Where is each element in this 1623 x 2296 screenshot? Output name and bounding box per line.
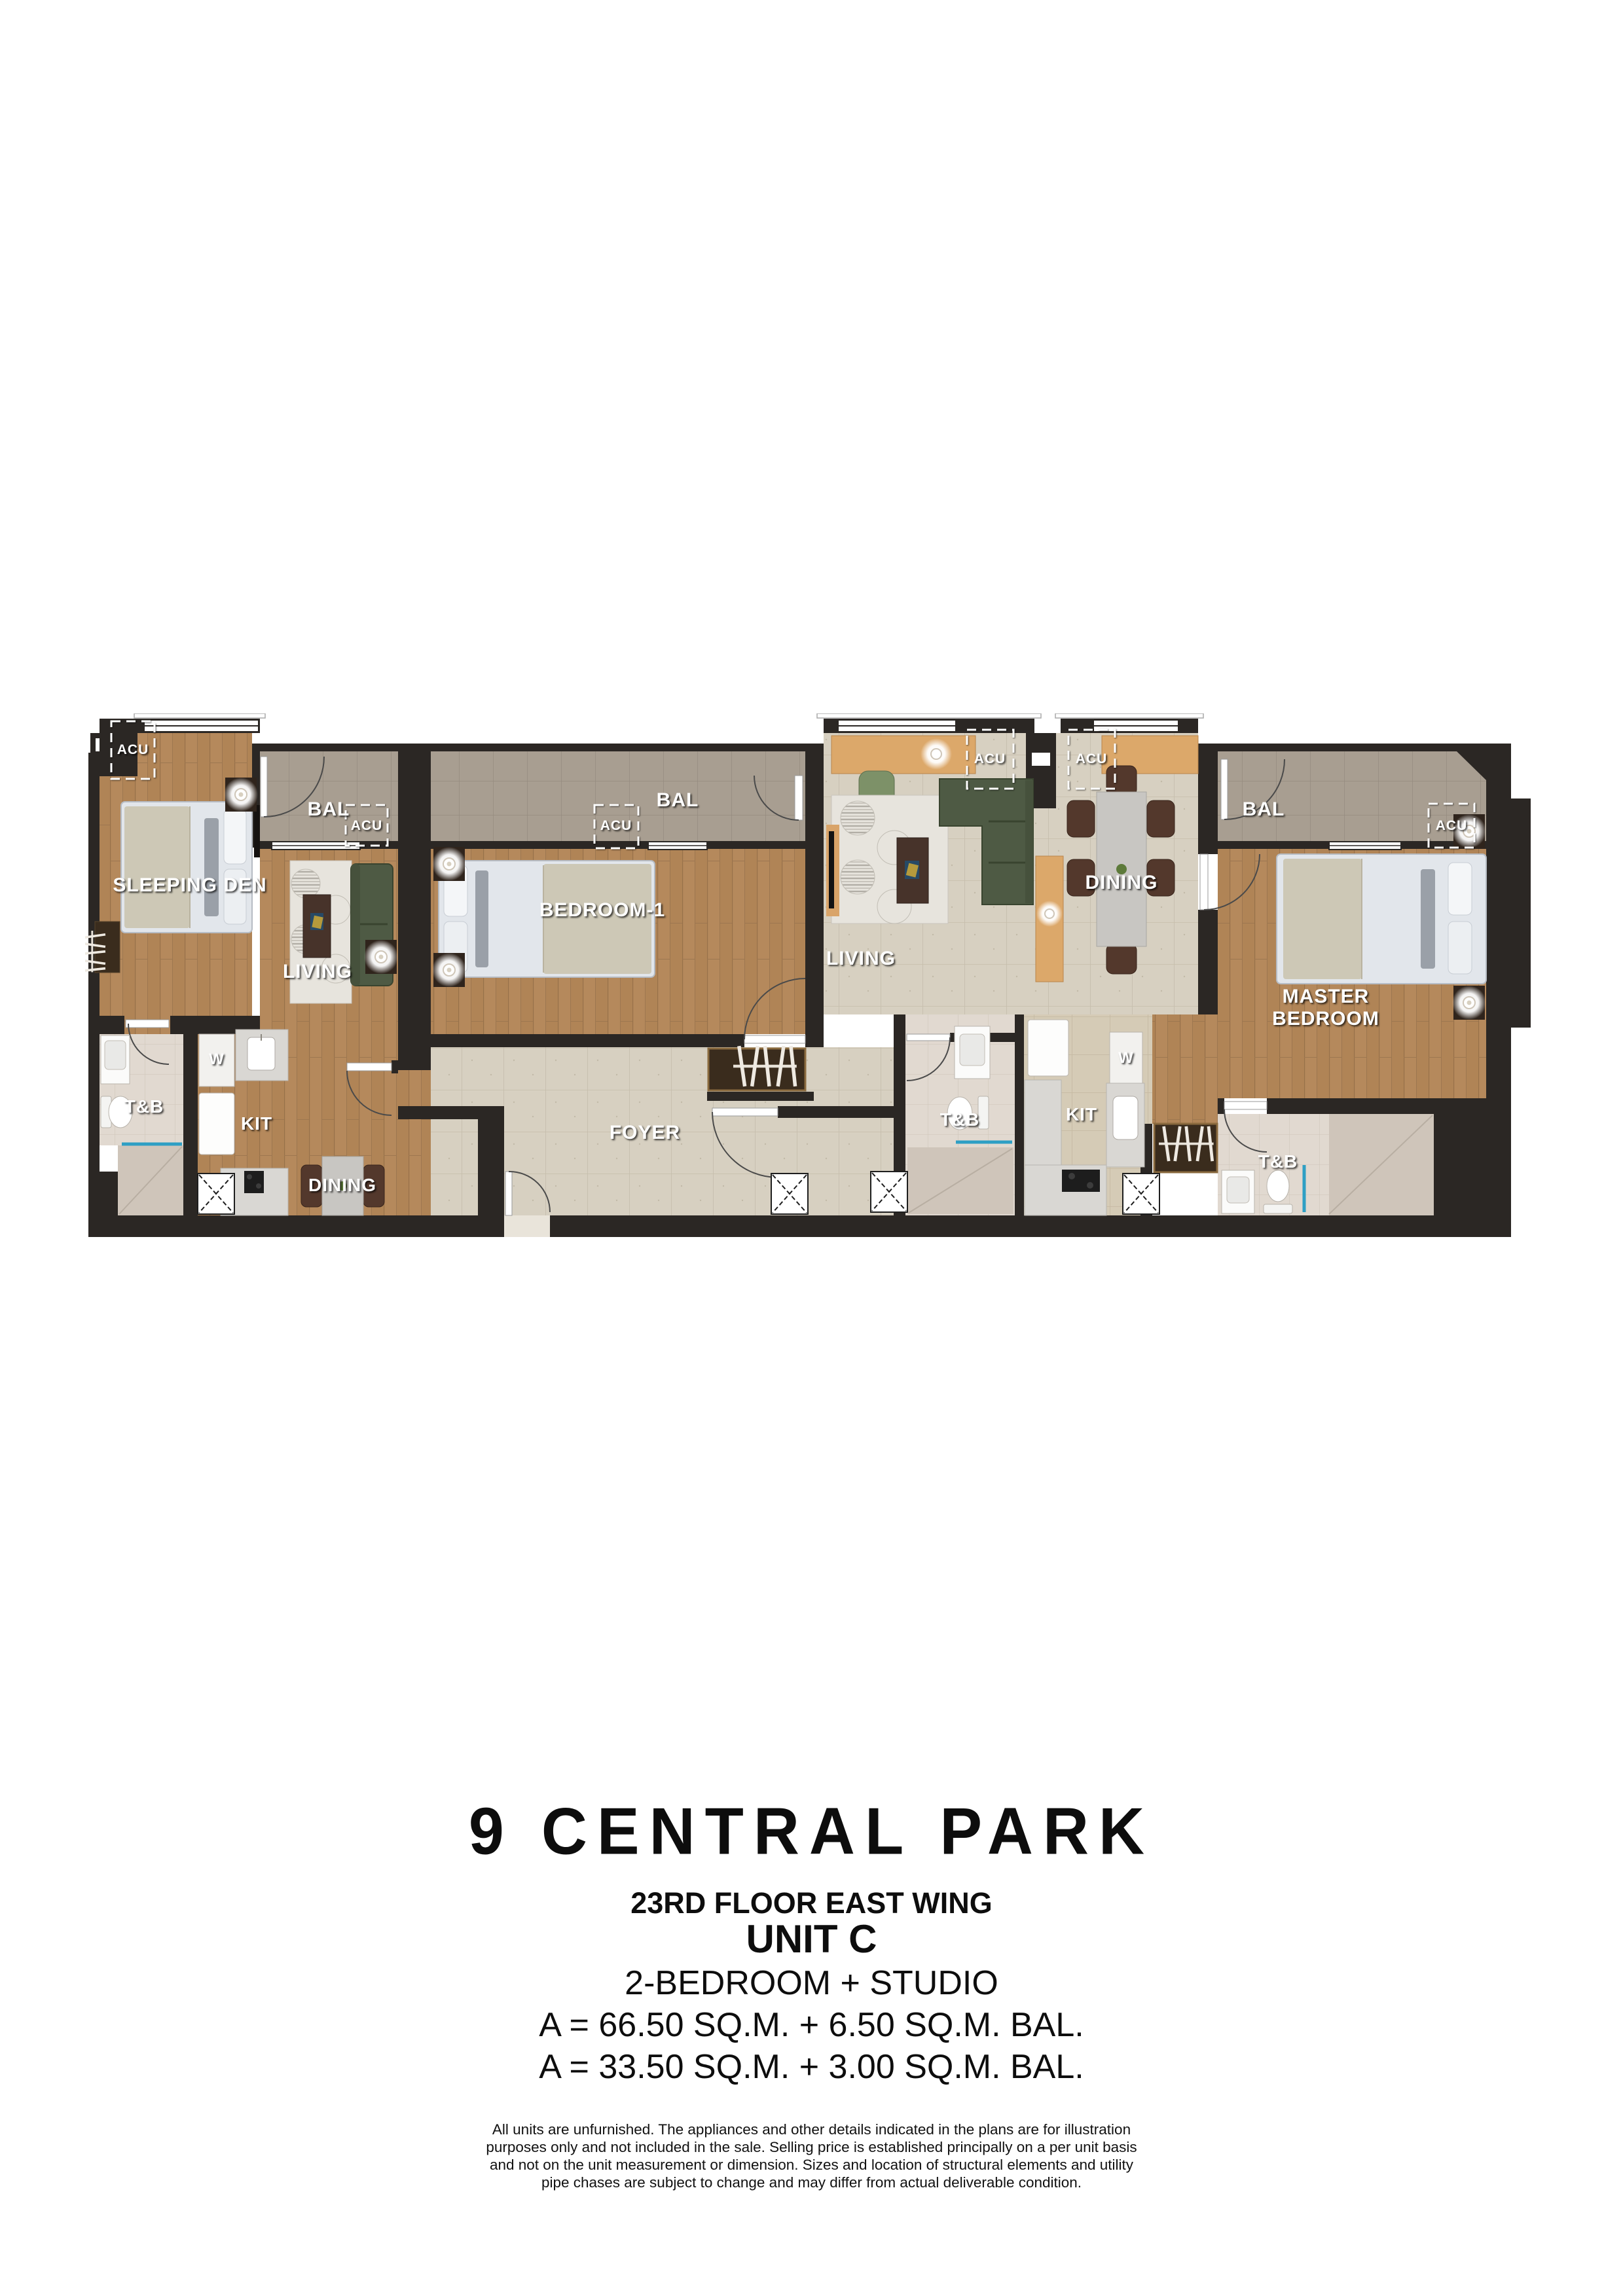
- label-tandb-2: T&B: [940, 1109, 980, 1130]
- disclaimer-line-2: purposes only and not included in the sa…: [0, 2138, 1623, 2156]
- shaft-x-icon: [198, 1174, 234, 1214]
- coffee-table-living2: [897, 838, 928, 903]
- label-living-2: LIVING: [826, 948, 896, 969]
- label-tandb-1: T&B: [124, 1096, 164, 1117]
- page-background: SLEEPING DEN BAL ACU ACU LIVING T&B W KI…: [0, 0, 1623, 2296]
- label-master-line2: BEDROOM: [1272, 1008, 1379, 1030]
- window-sleeping-den: [144, 720, 259, 732]
- label-kit-1: KIT: [241, 1113, 272, 1134]
- shaft-x-icon: [1123, 1174, 1159, 1214]
- sink-studio: [101, 1035, 130, 1084]
- area-line-2: A = 33.50 SQ.M. + 3.00 SQ.M. BAL.: [0, 2047, 1623, 2087]
- sink-2br: [955, 1026, 990, 1079]
- floor-plan: SLEEPING DEN BAL ACU ACU LIVING T&B W KI…: [85, 713, 1532, 1250]
- bed-master: [1277, 854, 1486, 984]
- label-tandb-3: T&B: [1258, 1151, 1298, 1172]
- ceiling-light-icon: [432, 953, 466, 987]
- stove-counter-2br: [1025, 1165, 1106, 1215]
- window-bedroom1: [648, 842, 707, 850]
- fridge-2br: [1028, 1020, 1068, 1076]
- label-dining-1: DINING: [308, 1175, 376, 1195]
- label-foyer: FOYER: [610, 1122, 680, 1143]
- area-line-1: A = 66.50 SQ.M. + 6.50 SQ.M. BAL.: [0, 2005, 1623, 2045]
- console-living2: [1036, 856, 1063, 982]
- project-title: 9 CENTRAL PARK: [0, 1793, 1623, 1869]
- floor-plan-svg: SLEEPING DEN BAL ACU ACU LIVING T&B W KI…: [85, 713, 1532, 1250]
- shaft-x-icon: [871, 1172, 907, 1212]
- label-bal-3: BAL: [1243, 798, 1285, 820]
- floor-wing-line: 23RD FLOOR EAST WING: [0, 1886, 1623, 1920]
- label-master-line1: MASTER: [1283, 986, 1370, 1007]
- counter-right-2br: [1106, 1083, 1144, 1167]
- window-master: [1329, 842, 1401, 850]
- disclaimer-line-1: All units are unfurnished. The appliance…: [0, 2121, 1623, 2138]
- label-acu-2: ACU: [351, 818, 383, 833]
- label-living-1: LIVING: [283, 961, 352, 982]
- shaft-x-icon: [771, 1174, 808, 1214]
- label-bal-2: BAL: [657, 789, 699, 811]
- label-bal-1: BAL: [308, 798, 350, 820]
- window-living-bay: [838, 720, 956, 732]
- disclaimer-line-3: and not on the unit measurement or dimen…: [0, 2156, 1623, 2174]
- room-master-hall-floor: [1152, 1014, 1218, 1124]
- label-acu-5: ACU: [1076, 751, 1108, 766]
- label-acu-6: ACU: [1436, 818, 1468, 833]
- unit-line: UNIT C: [0, 1916, 1623, 1962]
- label-kit-2: KIT: [1066, 1104, 1097, 1124]
- ceiling-light-icon: [1452, 986, 1486, 1020]
- label-acu-4: ACU: [974, 751, 1006, 766]
- tv-console-living2: [826, 825, 839, 916]
- desk-living2: [831, 736, 976, 774]
- disclaimer-line-4: pipe chases are subject to change and ma…: [0, 2174, 1623, 2191]
- wardrobe-bedroom1: [708, 1046, 805, 1090]
- fridge-studio: [199, 1093, 234, 1155]
- label-sleeping-den: SLEEPING DEN: [113, 874, 266, 896]
- ceiling-light-icon: [224, 778, 258, 812]
- label-dining-2: DINING: [1085, 872, 1158, 893]
- label-w-2: W: [1118, 1049, 1134, 1067]
- label-w-1: W: [209, 1050, 225, 1068]
- label-bedroom-1: BEDROOM-1: [539, 899, 665, 921]
- sink-master: [1222, 1170, 1254, 1213]
- wardrobe-master: [1154, 1124, 1217, 1172]
- disclaimer: All units are unfurnished. The appliance…: [0, 2121, 1623, 2191]
- config-line: 2-BEDROOM + STUDIO: [0, 1964, 1623, 2003]
- label-acu-1: ACU: [117, 742, 149, 757]
- ceiling-light-icon: [432, 847, 466, 881]
- label-acu-3: ACU: [600, 818, 632, 833]
- ceiling-light-icon: [364, 940, 398, 974]
- counter-studio: [236, 1030, 288, 1081]
- bed-studio: [121, 802, 252, 933]
